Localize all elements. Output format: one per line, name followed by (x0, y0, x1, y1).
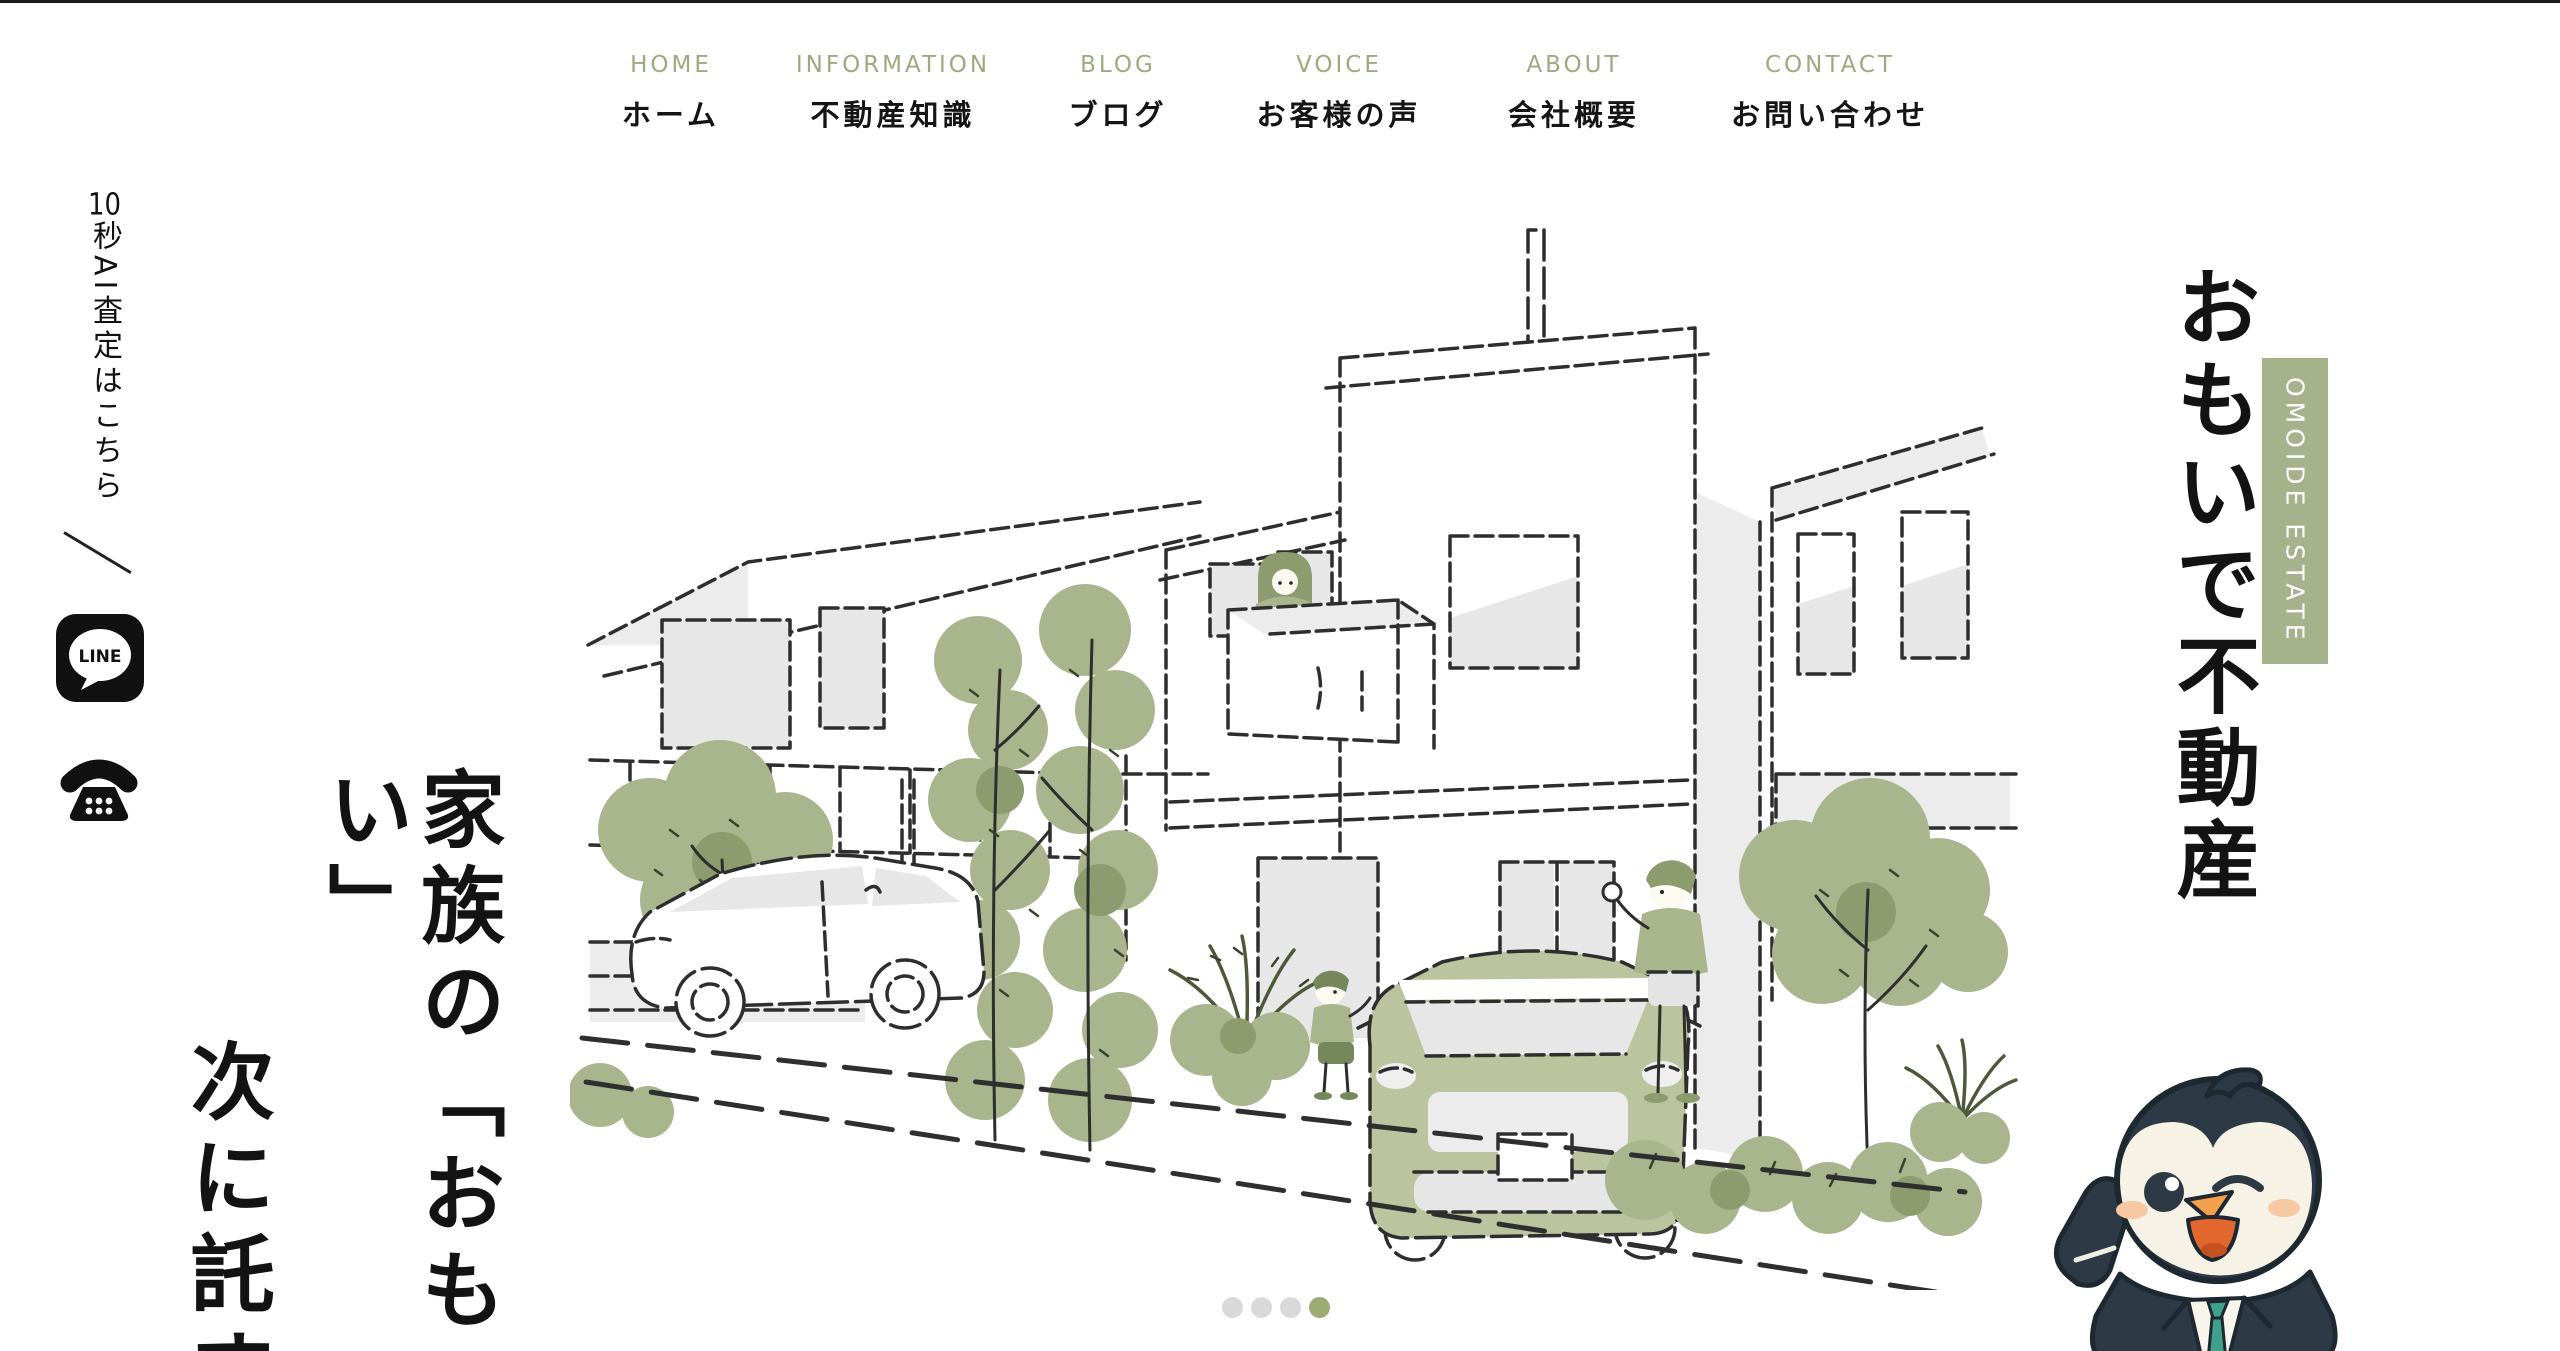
ai-appraisal-link[interactable]: 10秒AI査定はこちら (82, 190, 126, 590)
nav-contact-en: CONTACT (1731, 52, 1929, 78)
brand-badge: OMOIDE ESTATE (2262, 358, 2328, 664)
carousel-dot-4-active[interactable] (1309, 1297, 1330, 1318)
penguin-blush-left (2116, 1201, 2148, 1219)
nav-home-en: HOME (622, 52, 720, 78)
nav-item-blog[interactable]: BLOG ブログ (1068, 52, 1167, 134)
nav-blog-jp: ブログ (1068, 92, 1167, 134)
ai-appraisal-number: 10 (87, 190, 122, 220)
penguin-mascot (2048, 1060, 2348, 1351)
penguin-blush-right (2268, 1199, 2300, 1217)
carousel-dot-3[interactable] (1280, 1297, 1301, 1318)
line-icon-label: LINE (79, 647, 122, 667)
landing-page: HOME ホーム INFORMATION 不動産知識 BLOG ブログ VOIC… (0, 0, 2560, 1351)
bushes (570, 1063, 1982, 1236)
carousel-dots (1222, 1297, 1330, 1318)
site-title-vertical: おもいで不動産 (2152, 264, 2273, 944)
nav-contact-jp: お問い合わせ (1731, 92, 1929, 134)
hero-illustration (570, 190, 2020, 1290)
nav-about-jp: 会社概要 (1508, 92, 1640, 134)
nav-item-about[interactable]: ABOUT 会社概要 (1508, 52, 1640, 134)
brand-badge-label: OMOIDE ESTATE (2281, 377, 2310, 645)
nav-information-jp: 不動産知識 (796, 92, 990, 134)
penguin-eye-open (2144, 1172, 2184, 1212)
nav-voice-en: VOICE (1256, 52, 1421, 78)
hero-headline-line1: 家族の「おもい」 (318, 766, 503, 1351)
nav-about-en: ABOUT (1508, 52, 1640, 78)
nav-information-en: INFORMATION (796, 52, 990, 78)
top-border (0, 0, 2560, 3)
palm-right (1906, 1040, 2016, 1164)
carousel-dot-2[interactable] (1251, 1297, 1272, 1318)
nav-home-jp: ホーム (622, 92, 720, 134)
hero-headline-line2: 次に託す (180, 1038, 272, 1351)
carousel-dot-1[interactable] (1222, 1297, 1243, 1318)
ai-appraisal-text: 秒AI査定はこちら (87, 220, 122, 504)
phone-icon[interactable] (58, 753, 140, 827)
nav-blog-en: BLOG (1068, 52, 1167, 78)
nav-voice-jp: お客様の声 (1256, 92, 1421, 134)
line-icon[interactable]: LINE (54, 612, 146, 704)
nav-item-home[interactable]: HOME ホーム (622, 52, 720, 134)
nav-item-voice[interactable]: VOICE お客様の声 (1256, 52, 1421, 134)
nav-item-contact[interactable]: CONTACT お問い合わせ (1731, 52, 1929, 134)
nav-item-information[interactable]: INFORMATION 不動産知識 (796, 52, 990, 134)
